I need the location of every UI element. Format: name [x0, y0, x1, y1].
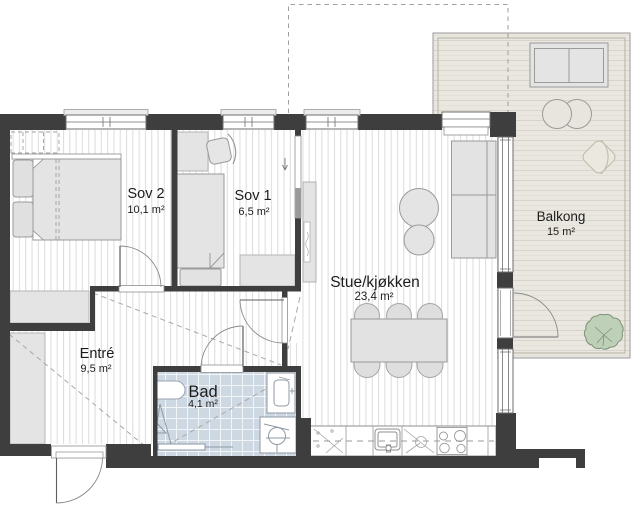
svg-text:Sov 2: Sov 2 [127, 186, 164, 202]
svg-text:9,5 m²: 9,5 m² [80, 363, 112, 375]
svg-text:Sov 1: Sov 1 [234, 188, 271, 204]
svg-text:23,4 m²: 23,4 m² [355, 291, 394, 303]
svg-text:Entré: Entré [80, 346, 115, 362]
svg-text:Stue/kjøkken: Stue/kjøkken [330, 274, 420, 291]
svg-text:10,1 m²: 10,1 m² [127, 204, 165, 216]
svg-text:Balkong: Balkong [537, 209, 586, 224]
svg-text:4,1 m²: 4,1 m² [188, 398, 218, 410]
svg-text:15 m²: 15 m² [547, 226, 575, 238]
svg-text:6,5 m²: 6,5 m² [238, 206, 270, 218]
